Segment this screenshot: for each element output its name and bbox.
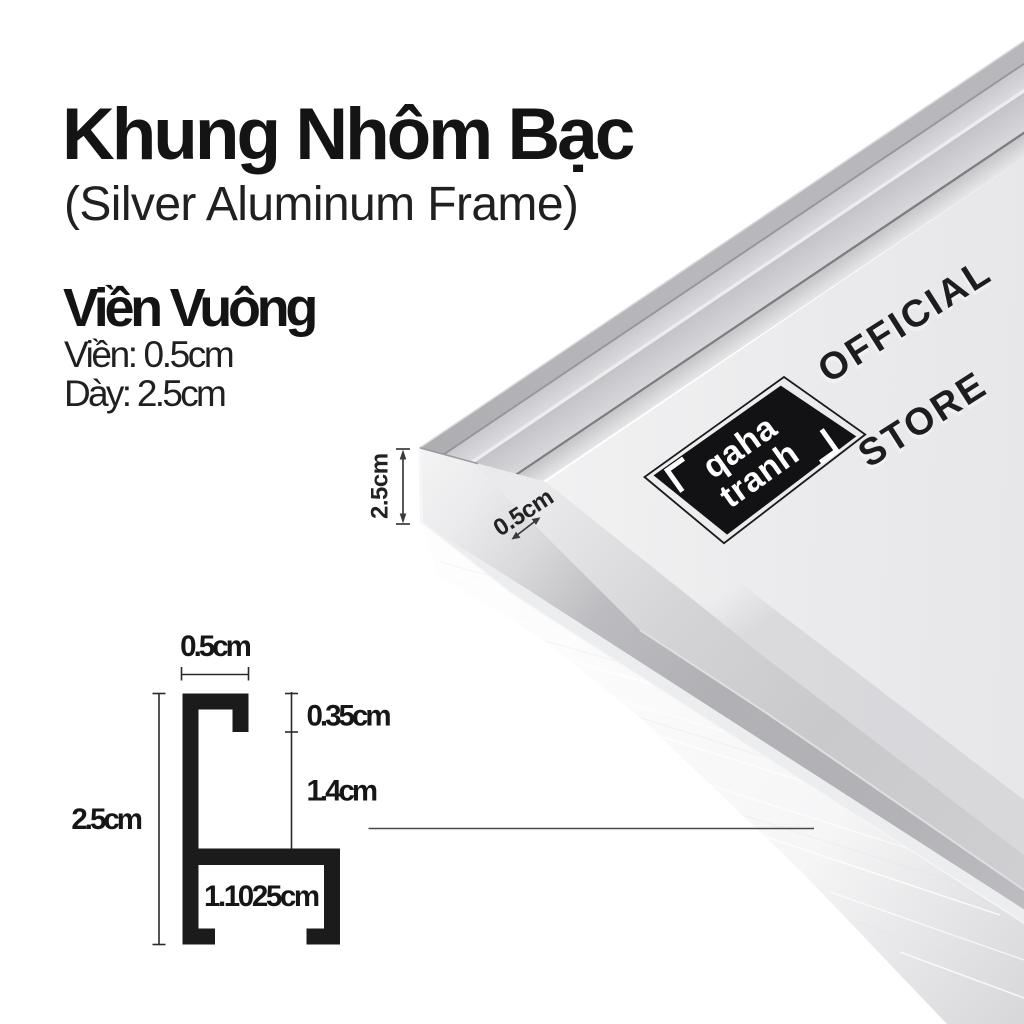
svg-text:0.35cm: 0.35cm	[307, 700, 391, 733]
svg-text:(Silver Aluminum Frame): (Silver Aluminum Frame)	[64, 178, 578, 231]
svg-text:2.5cm: 2.5cm	[71, 803, 141, 836]
svg-text:1.1025cm: 1.1025cm	[204, 880, 319, 913]
svg-text:0.5cm: 0.5cm	[180, 630, 250, 663]
svg-text:Dày: 2.5cm: Dày: 2.5cm	[64, 373, 225, 414]
svg-text:Viền Vuông: Viền Vuông	[63, 278, 315, 338]
svg-text:Khung Nhôm Bạc: Khung Nhôm Bạc	[62, 94, 634, 175]
svg-text:Viền: 0.5cm: Viền: 0.5cm	[64, 334, 233, 375]
svg-text:1.4cm: 1.4cm	[307, 775, 377, 808]
svg-text:2.5cm: 2.5cm	[367, 453, 394, 519]
